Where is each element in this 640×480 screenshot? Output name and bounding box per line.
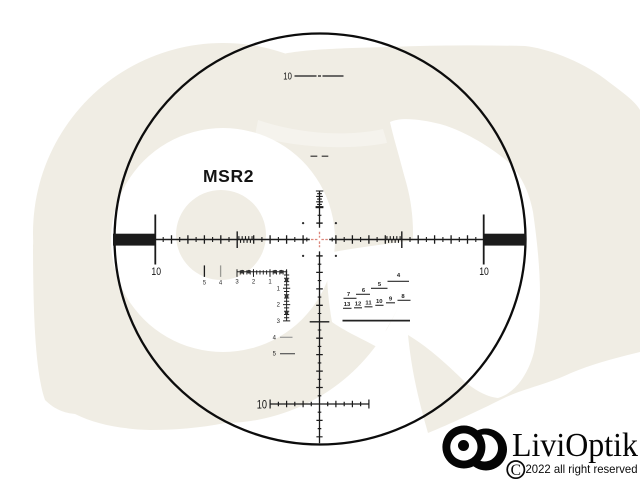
svg-text:2022 all right reserved: 2022 all right reserved [526,463,638,476]
svg-text:10: 10 [151,266,161,278]
svg-text:11: 11 [365,300,372,306]
svg-text:10: 10 [376,299,383,305]
svg-text:10: 10 [283,70,292,81]
svg-text:MSR2: MSR2 [203,166,254,186]
svg-text:10: 10 [479,266,489,278]
svg-text:C: C [511,462,521,479]
svg-text:13: 13 [344,302,351,308]
svg-text:10: 10 [257,398,267,411]
svg-text:12: 12 [355,301,362,307]
svg-text:LiviOptik: LiviOptik [512,427,638,464]
